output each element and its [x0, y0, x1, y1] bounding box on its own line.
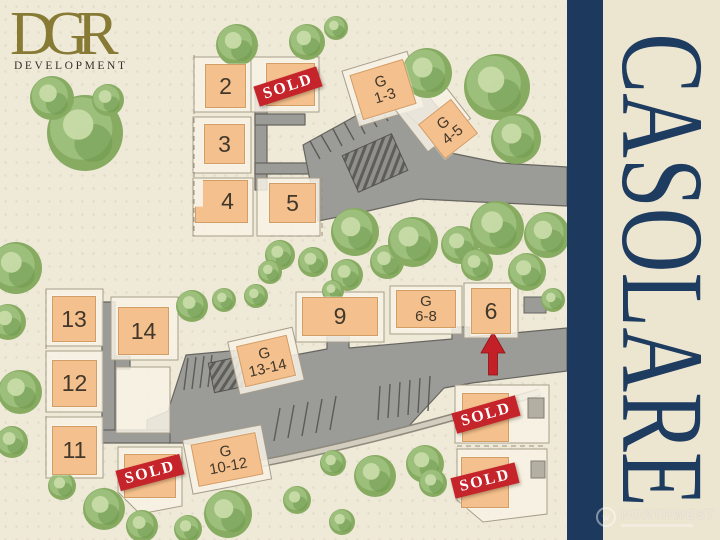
dgr-brand-subtitle: DEVELOPMENT	[14, 60, 128, 72]
tree-icon	[92, 84, 124, 116]
tree-icon	[212, 288, 236, 312]
tree-icon	[258, 260, 282, 284]
tree-icon	[298, 247, 328, 277]
project-title: CASOLARE	[603, 33, 720, 506]
tree-icon	[329, 509, 355, 535]
tree-icon	[0, 242, 42, 294]
tree-icon	[0, 370, 42, 414]
watermark-subline	[621, 524, 693, 527]
watermark-text: NORTHWEST	[621, 508, 715, 522]
tree-icon	[283, 486, 311, 514]
tree-icon	[204, 490, 252, 538]
tree-icon	[176, 290, 208, 322]
tree-icon	[461, 249, 493, 281]
site-plan-image: 2345G1-3G4-5131412119G6-86G13-14G10-12 S…	[0, 0, 720, 540]
tree-icon	[320, 450, 346, 476]
tree-icon	[508, 253, 546, 291]
tree-icon	[402, 48, 452, 98]
tree-icon	[354, 455, 396, 497]
tree-icon	[0, 304, 26, 340]
tree-icon	[30, 76, 74, 120]
tree-icon	[419, 469, 447, 497]
tree-icon	[524, 212, 570, 258]
tree-icon	[174, 515, 202, 540]
tree-icon	[388, 217, 438, 267]
tree-icon	[491, 114, 541, 164]
nwmls-watermark: w NORTHWEST	[596, 507, 715, 527]
tree-icon	[464, 54, 530, 120]
title-panel: CASOLARE	[603, 0, 720, 540]
tree-icon	[331, 208, 379, 256]
tree-icon	[83, 488, 125, 530]
tree-icon	[216, 24, 258, 66]
tree-icon	[470, 201, 524, 255]
navy-divider-bar	[567, 0, 603, 540]
tree-icon	[324, 16, 348, 40]
dgr-brand-mark: DGR	[10, 4, 128, 64]
tree-icon	[541, 288, 565, 312]
tree-icon	[322, 280, 344, 302]
tree-icon	[48, 472, 76, 500]
tree-icon	[244, 284, 268, 308]
nwmls-logo-icon: w	[596, 507, 616, 527]
tree-icon	[289, 24, 325, 60]
tree-icon	[126, 510, 158, 540]
dgr-development-logo: DGR DEVELOPMENT	[10, 4, 128, 72]
tree-icon	[0, 426, 28, 458]
